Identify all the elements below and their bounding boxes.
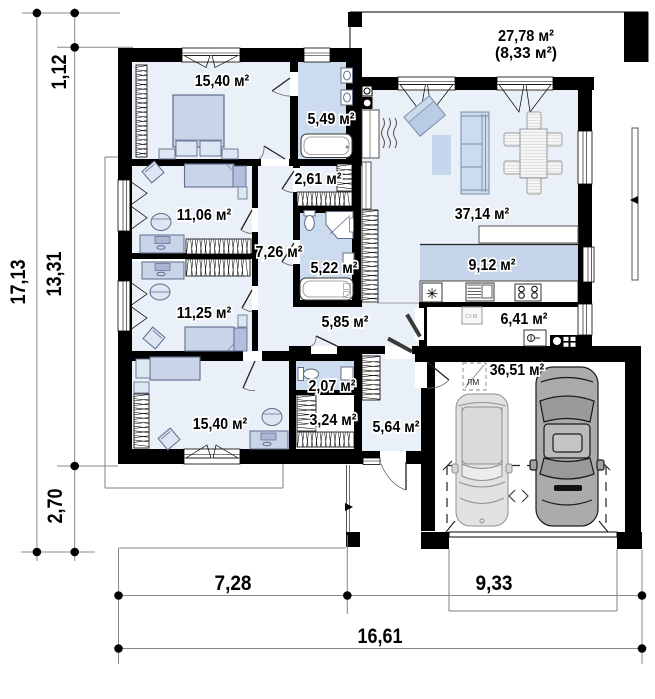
svg-text:5,49 м²: 5,49 м²: [308, 111, 355, 128]
svg-text:2,61 м²: 2,61 м²: [295, 171, 342, 188]
svg-text:3,24 м²: 3,24 м²: [310, 412, 357, 429]
svg-text:13,31: 13,31: [43, 251, 66, 296]
svg-text:37,14 м²: 37,14 м²: [455, 206, 510, 223]
svg-text:36,51 м²: 36,51 м²: [490, 362, 545, 379]
svg-text:9,12 м²: 9,12 м²: [469, 257, 516, 274]
svg-text:6,41 м²: 6,41 м²: [501, 311, 548, 328]
svg-text:9,33: 9,33: [476, 572, 513, 595]
svg-text:7,28: 7,28: [215, 572, 252, 595]
svg-text:15,40 м²: 15,40 м²: [193, 416, 248, 433]
svg-text:2,07 м²: 2,07 м²: [309, 378, 356, 395]
svg-text:15,40 м²: 15,40 м²: [195, 73, 250, 90]
svg-text:11,06 м²: 11,06 м²: [177, 207, 232, 224]
svg-text:17,13: 17,13: [7, 260, 30, 305]
svg-text:7,26 м²: 7,26 м²: [256, 244, 303, 261]
svg-text:5,22 м²: 5,22 м²: [311, 260, 358, 277]
svg-text:5,85 м²: 5,85 м²: [322, 314, 369, 331]
svg-text:ЛМ: ЛМ: [467, 377, 480, 387]
svg-text:11,25 м²: 11,25 м²: [177, 305, 232, 322]
svg-text:16,61: 16,61: [358, 625, 403, 648]
svg-text:(8,33 м²): (8,33 м²): [495, 45, 557, 62]
svg-text:1,12: 1,12: [48, 55, 71, 90]
svg-text:27,78 м²: 27,78 м²: [498, 28, 554, 45]
svg-text:5,64 м²: 5,64 м²: [373, 419, 420, 436]
svg-text:Ст.М.: Ст.М.: [465, 314, 479, 320]
svg-text:✳: ✳: [426, 286, 439, 303]
svg-text:2,70: 2,70: [44, 489, 67, 524]
